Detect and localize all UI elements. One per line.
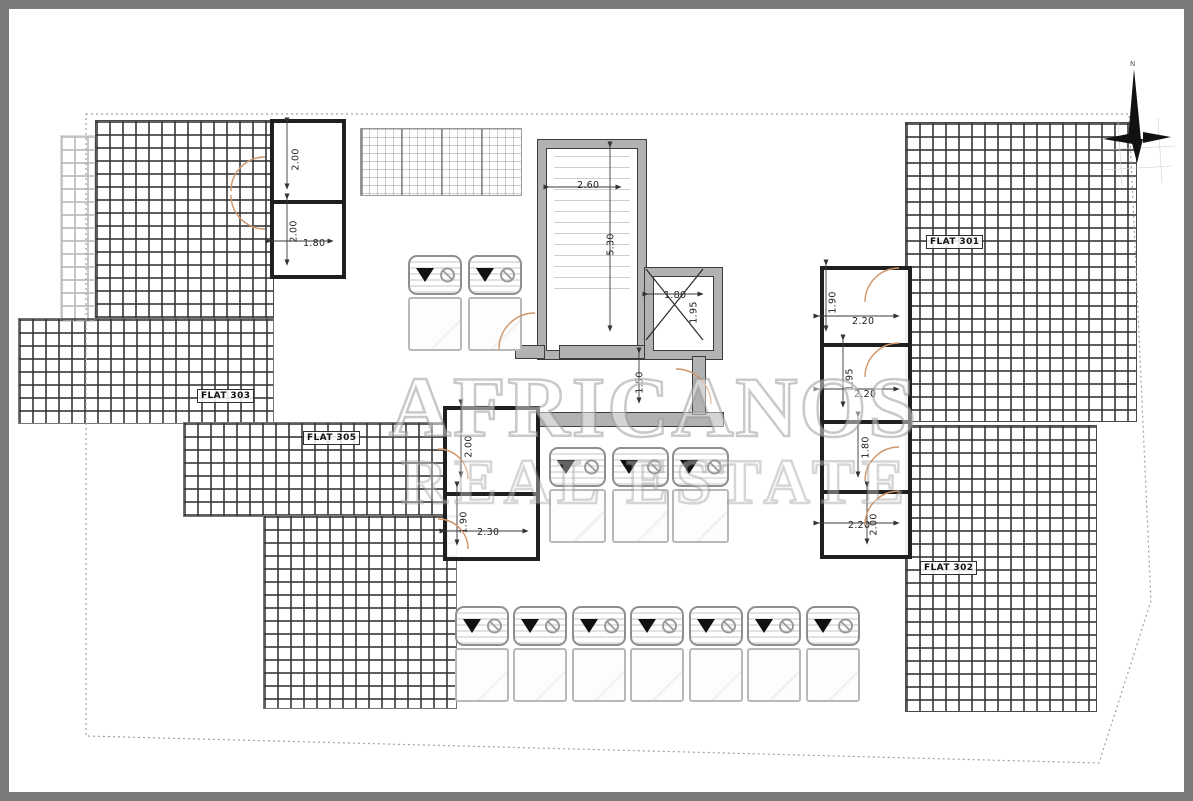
dimension-label: 5.30	[606, 233, 617, 255]
stair-landing-wall	[560, 346, 646, 358]
dimension-label: 1.95	[845, 368, 856, 390]
valve-circle-icon	[721, 619, 736, 634]
solar-water-heater-unit	[689, 606, 743, 702]
dimension-label: 2.60	[577, 180, 599, 191]
roof-hatch-top-left	[95, 120, 274, 322]
triangle-marker-icon	[521, 619, 539, 633]
solar-water-heater-unit	[612, 447, 669, 543]
solar-panel	[549, 489, 606, 543]
triangle-marker-icon	[463, 619, 481, 633]
flat-label-303: FLAT 303	[197, 389, 254, 403]
room-divider-wall	[824, 490, 908, 494]
solar-panel	[455, 648, 509, 702]
solar-tank	[689, 606, 743, 646]
room-divider-wall	[447, 492, 536, 496]
solar-water-heater-unit	[408, 255, 462, 351]
roof-hatch-left-wing	[18, 318, 274, 424]
stairwell	[538, 140, 646, 359]
solar-tank	[468, 255, 522, 295]
solar-water-heater-unit	[672, 447, 729, 543]
solar-water-heater-unit	[549, 447, 606, 543]
solar-water-heater-unit	[747, 606, 801, 702]
solar-panel	[672, 489, 729, 543]
valve-circle-icon	[662, 619, 677, 634]
dimension-label: 2.20	[852, 316, 874, 327]
roof-hatch-top-right	[905, 122, 1137, 422]
solar-panel	[468, 297, 522, 351]
triangle-marker-icon	[557, 460, 575, 474]
dimension-label: 1.90	[459, 511, 470, 533]
solar-water-heater-unit	[806, 606, 860, 702]
pergola-grid	[360, 128, 522, 196]
dimension-label: 2.20	[854, 389, 876, 400]
dimension-label: 2.00	[464, 435, 475, 457]
solar-tank	[513, 606, 567, 646]
valve-circle-icon	[584, 460, 599, 475]
solar-tank	[630, 606, 684, 646]
solar-tank	[408, 255, 462, 295]
valve-circle-icon	[487, 619, 502, 634]
dimension-label: 2.00	[289, 220, 300, 242]
triangle-marker-icon	[638, 619, 656, 633]
corridor-wall	[540, 413, 723, 426]
solar-water-heater-unit	[513, 606, 567, 702]
dimension-label: 2.30	[477, 527, 499, 538]
dimension-label: 1.80	[664, 290, 686, 301]
solar-tank	[672, 447, 729, 487]
valve-circle-icon	[545, 619, 560, 634]
solar-tank	[549, 447, 606, 487]
solar-panel	[612, 489, 669, 543]
solar-tank	[455, 606, 509, 646]
solar-panel	[572, 648, 626, 702]
dimension-label: 1.95	[689, 301, 700, 323]
solar-tank	[612, 447, 669, 487]
valve-circle-icon	[500, 268, 515, 283]
solar-water-heater-unit	[572, 606, 626, 702]
valve-circle-icon	[440, 268, 455, 283]
solar-tank	[806, 606, 860, 646]
solar-panel	[513, 648, 567, 702]
flat-label-301: FLAT 301	[926, 235, 983, 249]
flat-label-302: FLAT 302	[920, 561, 977, 575]
valve-circle-icon	[707, 460, 722, 475]
room-divider-wall	[824, 343, 908, 347]
solar-panel	[806, 648, 860, 702]
valve-circle-icon	[647, 460, 662, 475]
triangle-marker-icon	[620, 460, 638, 474]
dimension-label: 1.90	[828, 291, 839, 313]
compass-north-label: N	[1130, 60, 1135, 68]
valve-circle-icon	[604, 619, 619, 634]
solar-panel	[408, 297, 462, 351]
dimension-label: 1.50	[635, 371, 646, 393]
drawing-frame: FLAT 303 FLAT 305 FLAT 301 FLAT 302 2.00…	[0, 0, 1193, 801]
solar-water-heater-unit	[468, 255, 522, 351]
triangle-marker-icon	[580, 619, 598, 633]
solar-water-heater-unit	[630, 606, 684, 702]
room-divider-wall	[274, 200, 342, 204]
solar-tank	[572, 606, 626, 646]
corridor-wall-stub	[693, 357, 705, 414]
solar-tank	[747, 606, 801, 646]
triangle-marker-icon	[416, 268, 434, 282]
triangle-marker-icon	[680, 460, 698, 474]
top-left-room-block	[270, 119, 346, 279]
dimension-label: 1.80	[861, 436, 872, 458]
solar-panel	[630, 648, 684, 702]
room-divider-wall	[824, 420, 908, 424]
flat-label-305: FLAT 305	[303, 431, 360, 445]
triangle-marker-icon	[697, 619, 715, 633]
dimension-label: 1.80	[303, 238, 325, 249]
solar-water-heater-unit	[455, 606, 509, 702]
stair-treads	[554, 156, 630, 298]
triangle-marker-icon	[476, 268, 494, 282]
solar-panel	[689, 648, 743, 702]
roof-hatch-left-strip	[60, 135, 95, 322]
dimension-label: 2.20	[848, 520, 870, 531]
dimension-label: 2.00	[291, 148, 302, 170]
elevator-shaft	[645, 268, 722, 359]
triangle-marker-icon	[814, 619, 832, 633]
valve-circle-icon	[779, 619, 794, 634]
valve-circle-icon	[838, 619, 853, 634]
roof-hatch-bottom-left	[263, 515, 457, 709]
triangle-marker-icon	[755, 619, 773, 633]
solar-panel	[747, 648, 801, 702]
